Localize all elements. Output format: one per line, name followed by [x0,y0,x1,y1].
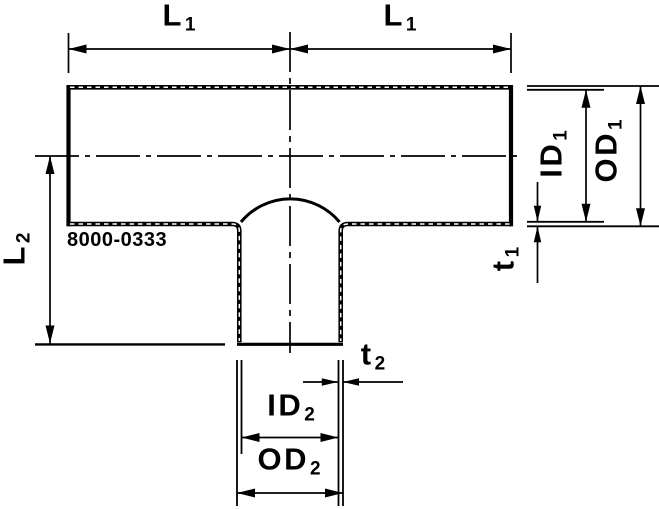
l1-left-arrowhead-inner [272,45,290,54]
l2-arrowhead-top [46,156,55,174]
id1-arrowhead-bottom [582,204,591,222]
dim-l1-left [69,33,291,73]
label-od1-sub: 1 [606,119,627,130]
od1-arrowhead-top [636,86,645,104]
label-l1-right: L1 [383,0,416,35]
label-l1-right-sub: 1 [406,15,417,36]
tee-drawing-svg [0,0,659,509]
od2-arrowhead-right [325,489,343,498]
label-od2-sub: 2 [310,459,321,480]
label-l1-left-base: L [162,0,183,33]
label-t1-sub: 1 [503,247,524,258]
label-od1: OD1 [591,119,626,182]
t1-arrowhead-down [534,206,541,222]
label-od2-base: OD [257,442,309,477]
label-t1-base: t [486,258,521,271]
label-od1-base: OD [589,131,624,183]
label-t1: t1 [488,247,523,271]
label-l1-left-sub: 1 [185,15,196,36]
label-id1-sub: 1 [551,130,572,141]
run-pipe-bottom-right-wall-and-branch-right-wall [341,224,511,342]
t2-arrowhead-left [343,378,359,385]
label-t2-base: t [361,337,374,372]
label-id1-base: ID [534,142,569,178]
t2-arrowhead-right [322,378,338,385]
od2-arrowhead-left [237,489,255,498]
bottom-right-wall-weld-dash [341,224,510,341]
label-id1: ID1 [536,130,571,178]
l2-arrowhead-bottom [46,326,55,344]
label-l2-sub: 2 [14,232,35,243]
od1-arrowhead-bottom [636,208,645,226]
label-l1-left: L1 [162,0,195,35]
label-l2: L2 [0,232,34,265]
dim-t2 [303,378,403,385]
label-t2-sub: 2 [375,354,386,375]
label-l1-right-base: L [383,0,404,33]
dim-od1 [636,86,645,226]
dim-l1-right [290,33,511,73]
label-t2: t2 [361,339,385,374]
label-id2-sub: 2 [304,405,315,426]
t1-arrowhead-up [534,226,541,242]
part-number: 8000-0333 [67,230,167,250]
label-id2-base: ID [267,388,303,423]
id2-arrowhead-right [321,433,339,442]
label-id2: ID2 [267,390,315,425]
l1-right-arrowhead-inner [290,45,308,54]
id1-arrowhead-top [582,90,591,108]
dimensions [35,33,659,506]
dim-od2 [237,489,343,498]
dim-t1 [534,182,541,283]
centerlines [35,32,518,353]
tee-dimension-drawing: L1 L1 L2 ID1 OD1 t1 t2 ID2 OD2 8000-0333 [0,0,659,509]
label-l2-base: L [0,244,32,265]
l1-right-arrowhead-outer [493,45,511,54]
label-od2: OD2 [257,444,320,479]
l1-left-arrowhead-outer [69,45,87,54]
